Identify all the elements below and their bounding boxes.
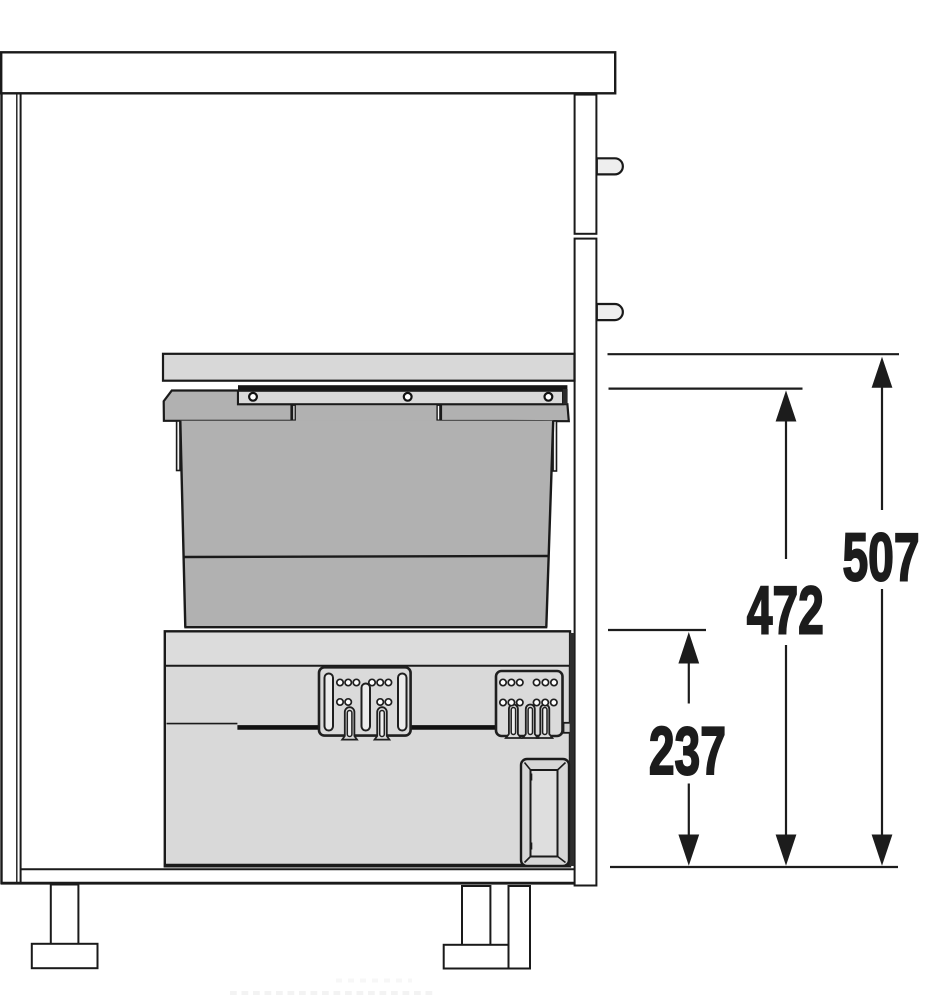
svg-text:472: 472 — [747, 573, 824, 649]
svg-text:237: 237 — [649, 713, 726, 789]
svg-text:507: 507 — [842, 520, 919, 596]
